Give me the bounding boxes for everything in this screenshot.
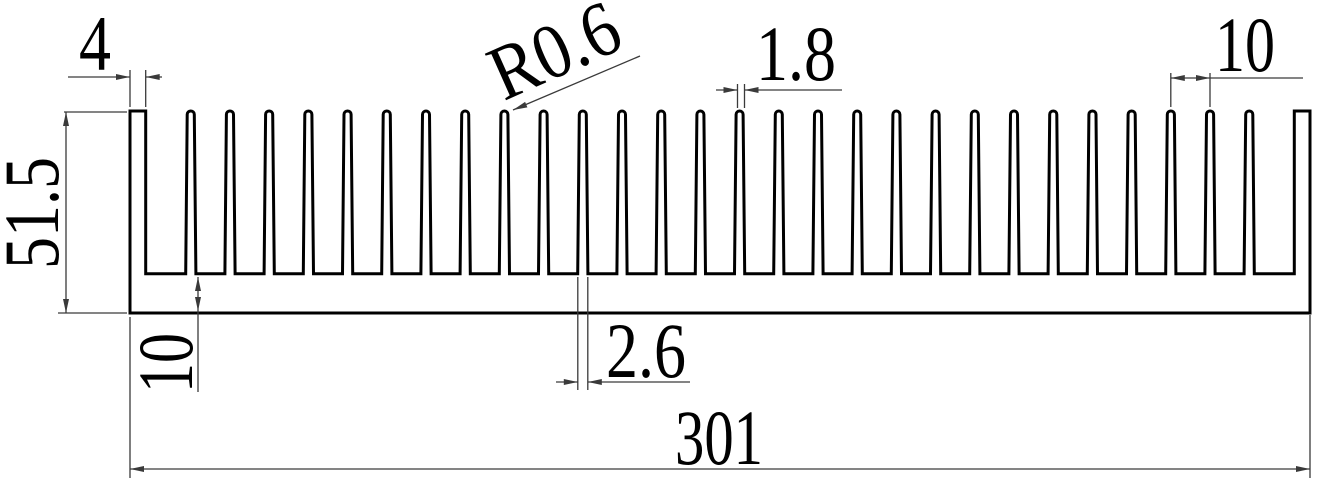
- dim-label-tip-radius: R0.6: [475, 0, 633, 117]
- drawing-svg: 4 51.5 10 R0.6 1.8 10 2.6: [0, 0, 1323, 486]
- arrowhead: [116, 74, 130, 80]
- dim-overall-height: 51.5: [0, 112, 127, 313]
- arrowhead: [564, 379, 578, 385]
- dim-end-fin-width: 4: [68, 0, 162, 107]
- arrowhead: [63, 299, 69, 313]
- arrowhead: [146, 74, 160, 80]
- arrowhead: [1296, 466, 1310, 472]
- dim-label-overall-height: 51.5: [0, 157, 75, 269]
- leader-tip-radius: R0.6: [475, 0, 640, 117]
- heatsink-profile-outline: [130, 111, 1310, 313]
- dim-label-fin-root-width: 2.6: [606, 307, 686, 394]
- arrowhead: [63, 112, 69, 126]
- arrowhead: [1171, 75, 1185, 81]
- dim-label-fin-pitch: 10: [1215, 1, 1275, 88]
- dim-overall-width: 301: [130, 315, 1310, 481]
- arrowhead: [588, 379, 602, 385]
- dim-label-end-fin-width: 4: [79, 0, 111, 87]
- arrowhead: [130, 466, 144, 472]
- dim-fin-pitch: 10: [1171, 1, 1303, 107]
- dim-label-base-thickness: 10: [122, 333, 209, 393]
- drawing-canvas: 4 51.5 10 R0.6 1.8 10 2.6: [0, 0, 1323, 486]
- arrowhead: [1196, 75, 1210, 81]
- dim-fin-tip-width: 1.8: [716, 10, 842, 108]
- arrowhead: [724, 87, 738, 93]
- dim-label-fin-tip-width: 1.8: [756, 10, 836, 97]
- dim-label-overall-width: 301: [675, 394, 763, 481]
